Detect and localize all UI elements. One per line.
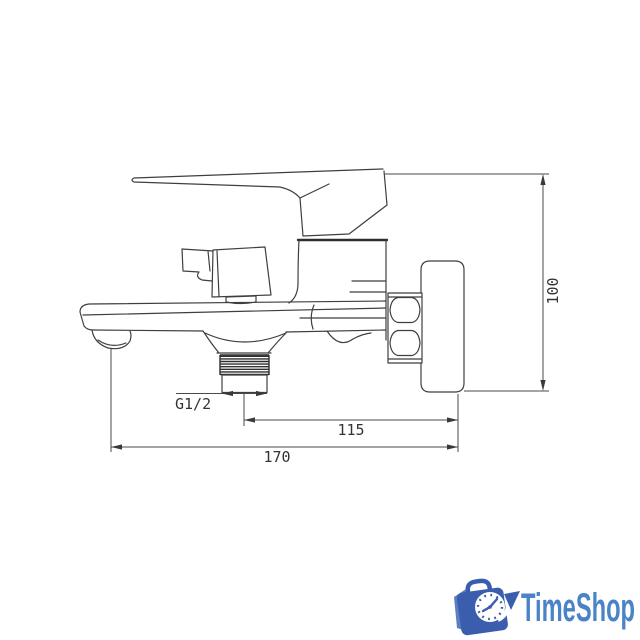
thread-ridges — [220, 356, 269, 374]
dimension-outlet-115: 115 — [244, 394, 458, 452]
valve-body-grooves — [311, 281, 386, 329]
dim-label-thread: G1/2 — [175, 395, 211, 413]
screenshot-canvas: 100 115 170 G1/2 — [0, 0, 640, 640]
shopping-bag-clock-icon — [454, 578, 520, 636]
dim-label-outlet: 115 — [337, 421, 364, 439]
hex-nut — [388, 293, 422, 363]
cartridge-housing — [300, 171, 387, 236]
outlet-pipe — [222, 375, 267, 393]
diverter-knob — [212, 247, 271, 297]
dimension-thread-g12: G1/2 — [175, 391, 267, 413]
outlet-skirt — [203, 331, 287, 353]
clock-center-dot — [488, 605, 492, 609]
valve-body — [289, 240, 386, 340]
dimension-depth-170: 170 — [111, 349, 458, 466]
aerator — [92, 330, 131, 349]
wall-plate — [421, 261, 464, 392]
dim-label-depth: 170 — [263, 448, 290, 466]
technical-drawing: 100 115 170 G1/2 — [0, 0, 640, 640]
diverter-lever — [182, 249, 213, 281]
threaded-outlet — [220, 355, 269, 393]
lever-handle — [132, 169, 383, 198]
faucet-drawing — [80, 169, 464, 393]
dim-label-height: 100 — [544, 277, 562, 304]
lever-crease — [300, 184, 329, 198]
logo-wordmark: TimeShop — [521, 586, 635, 630]
spout-body — [80, 301, 386, 343]
timeshop-logo: TimeShop — [454, 578, 635, 636]
